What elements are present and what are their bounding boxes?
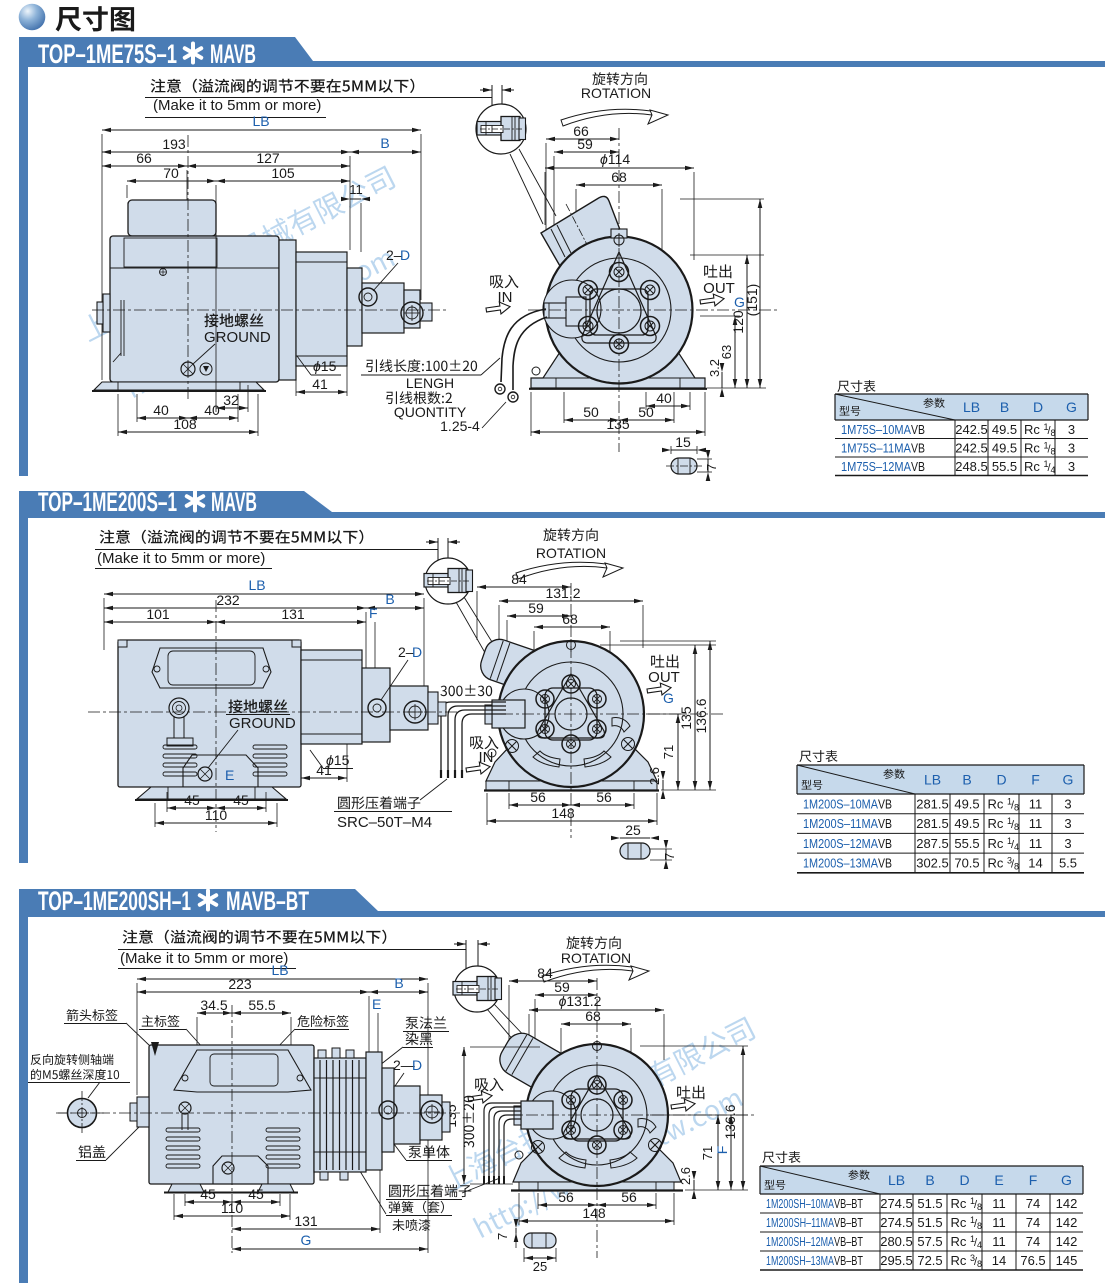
svg-text:248.5: 248.5 <box>955 459 988 474</box>
svg-text:8: 8 <box>977 1221 982 1231</box>
svg-text:242.5: 242.5 <box>955 422 988 437</box>
svg-text:Rc: Rc <box>988 855 1004 870</box>
svg-text:148: 148 <box>582 1205 606 1221</box>
svg-text:135: 135 <box>606 416 630 432</box>
svg-text:51.5: 51.5 <box>917 1196 942 1211</box>
svg-text:49.5: 49.5 <box>992 440 1017 455</box>
svg-text:142: 142 <box>1056 1234 1078 1249</box>
svg-text:Rc: Rc <box>988 796 1004 811</box>
svg-text:F: F <box>1029 1172 1038 1188</box>
svg-text:SRC–50T–M4: SRC–50T–M4 <box>337 814 432 831</box>
svg-text:70: 70 <box>163 165 179 181</box>
svg-text:F: F <box>1031 772 1040 788</box>
svg-text:45: 45 <box>248 1186 264 1202</box>
svg-text:74: 74 <box>1026 1215 1040 1230</box>
svg-text:45: 45 <box>184 792 200 808</box>
svg-text:76.5: 76.5 <box>1020 1253 1045 1268</box>
svg-text:74: 74 <box>1026 1234 1040 1249</box>
svg-text:281.5: 281.5 <box>916 816 949 831</box>
svg-text:F: F <box>369 605 378 621</box>
svg-text:8: 8 <box>977 1259 982 1269</box>
svg-text:1M75S–10MA: 1M75S–10MA <box>841 423 912 437</box>
svg-text:55.5: 55.5 <box>954 836 979 851</box>
svg-text:142: 142 <box>1056 1196 1078 1211</box>
svg-text:40: 40 <box>656 390 672 406</box>
svg-text:1M75S–12MA: 1M75S–12MA <box>841 460 912 474</box>
svg-text:70.5: 70.5 <box>954 855 979 870</box>
svg-text:40: 40 <box>153 402 169 418</box>
svg-text:1M75S–11MA: 1M75S–11MA <box>841 441 912 455</box>
svg-text:142: 142 <box>1056 1215 1078 1230</box>
svg-text:127: 127 <box>256 150 280 166</box>
svg-text:3: 3 <box>1064 796 1071 811</box>
svg-text:49.5: 49.5 <box>954 796 979 811</box>
svg-text:G: G <box>301 1232 312 1248</box>
svg-text:49.5: 49.5 <box>992 422 1017 437</box>
svg-text:68: 68 <box>562 611 578 627</box>
svg-text:84: 84 <box>511 571 527 587</box>
svg-text:7: 7 <box>704 464 719 471</box>
svg-text:LB: LB <box>252 113 269 129</box>
svg-text:VB: VB <box>878 856 892 870</box>
svg-text:71: 71 <box>661 745 676 759</box>
svg-text:295.5: 295.5 <box>880 1253 913 1268</box>
svg-text:G: G <box>1063 772 1074 788</box>
svg-text:11: 11 <box>1029 836 1043 851</box>
svg-text:50: 50 <box>583 404 599 420</box>
svg-text:ɸ15: ɸ15 <box>313 358 337 374</box>
svg-text:32: 32 <box>223 392 239 408</box>
svg-text:45: 45 <box>233 792 249 808</box>
svg-text:63: 63 <box>719 345 734 359</box>
svg-text:VB–BT: VB–BT <box>834 1197 863 1211</box>
svg-text:56: 56 <box>558 1189 574 1205</box>
svg-text:Rc: Rc <box>951 1215 967 1230</box>
svg-text:4: 4 <box>1050 465 1055 475</box>
svg-text:287.5: 287.5 <box>916 836 949 851</box>
svg-text:G: G <box>1061 1172 1072 1188</box>
svg-text:Rc: Rc <box>951 1253 967 1268</box>
svg-text:B: B <box>962 772 971 788</box>
svg-text:D: D <box>412 644 422 660</box>
svg-text:D: D <box>1033 399 1043 415</box>
svg-text:136.6: 136.6 <box>722 1104 738 1139</box>
svg-text:41: 41 <box>312 376 328 392</box>
svg-text:(151): (151) <box>744 284 760 317</box>
svg-text:8: 8 <box>1014 822 1019 832</box>
svg-text:59: 59 <box>528 600 544 616</box>
svg-text:Rc: Rc <box>1024 459 1040 474</box>
svg-text:14: 14 <box>992 1253 1006 1268</box>
svg-text:131: 131 <box>281 606 305 622</box>
svg-text:280.5: 280.5 <box>880 1234 913 1249</box>
svg-text:B: B <box>925 1172 934 1188</box>
svg-text:34.5: 34.5 <box>200 997 227 1013</box>
svg-text:Rc: Rc <box>988 836 1004 851</box>
svg-text:VB: VB <box>911 441 925 455</box>
svg-text:101: 101 <box>146 606 170 622</box>
svg-text:3: 3 <box>1068 459 1075 474</box>
svg-text:VB: VB <box>878 797 892 811</box>
svg-text:72.5: 72.5 <box>917 1253 942 1268</box>
svg-text:56: 56 <box>530 789 546 805</box>
svg-text:2.6: 2.6 <box>678 1167 693 1185</box>
svg-text:(Make it to 5mm or more): (Make it to 5mm or more) <box>120 950 288 967</box>
svg-text:B: B <box>394 975 403 991</box>
svg-text:145: 145 <box>1056 1253 1078 1268</box>
svg-text:7: 7 <box>495 1233 510 1240</box>
svg-text:Rc: Rc <box>1024 440 1040 455</box>
svg-text:8: 8 <box>1050 428 1055 438</box>
svg-text:VB: VB <box>911 423 925 437</box>
svg-text:11: 11 <box>992 1196 1006 1211</box>
svg-text:MAVB: MAVB <box>211 487 257 517</box>
svg-text:3: 3 <box>1068 440 1075 455</box>
svg-text:131: 131 <box>294 1213 318 1229</box>
svg-text:TOP–1ME75S–1: TOP–1ME75S–1 <box>38 39 177 69</box>
svg-text:ROTATION: ROTATION <box>581 85 651 101</box>
svg-text:1M200S–12MA: 1M200S–12MA <box>803 837 879 851</box>
svg-text:3: 3 <box>1064 836 1071 851</box>
svg-text:ɸ131.2: ɸ131.2 <box>559 993 602 1009</box>
svg-text:50: 50 <box>638 404 654 420</box>
svg-text:55.5: 55.5 <box>992 459 1017 474</box>
svg-text:11: 11 <box>349 182 363 197</box>
svg-text:71: 71 <box>700 1146 715 1160</box>
svg-text:74: 74 <box>1026 1196 1040 1211</box>
svg-text:LB: LB <box>924 772 941 788</box>
svg-text:55.5: 55.5 <box>248 997 275 1013</box>
svg-text:8: 8 <box>1050 446 1055 456</box>
svg-text:D: D <box>959 1172 969 1188</box>
svg-text:223: 223 <box>228 976 252 992</box>
svg-text:56: 56 <box>621 1189 637 1205</box>
svg-text:TOP–1ME200SH–1: TOP–1ME200SH–1 <box>38 886 191 916</box>
svg-text:1M200S–11MA: 1M200S–11MA <box>803 817 879 831</box>
svg-text:1M200SH–12MA: 1M200SH–12MA <box>766 1235 834 1249</box>
svg-text:GROUND: GROUND <box>204 329 271 346</box>
svg-text:4: 4 <box>1014 842 1019 852</box>
svg-text:1M200SH–10MA: 1M200SH–10MA <box>766 1197 834 1211</box>
svg-text:5.5: 5.5 <box>1059 855 1077 870</box>
svg-text:ROTATION: ROTATION <box>561 950 631 966</box>
svg-text:108: 108 <box>173 416 197 432</box>
svg-text:51.5: 51.5 <box>917 1215 942 1230</box>
svg-text:8: 8 <box>1014 802 1019 812</box>
svg-text:40: 40 <box>204 402 220 418</box>
svg-text:135: 135 <box>678 706 694 730</box>
svg-text:59: 59 <box>577 136 593 152</box>
svg-text:4: 4 <box>977 1240 982 1250</box>
svg-text:Rc: Rc <box>988 816 1004 831</box>
svg-text:3: 3 <box>1064 816 1071 831</box>
svg-text:E: E <box>994 1172 1003 1188</box>
svg-text:11: 11 <box>992 1234 1006 1249</box>
svg-text:G: G <box>663 690 674 706</box>
svg-text:VB–BT: VB–BT <box>834 1235 863 1249</box>
svg-text:D: D <box>400 247 410 263</box>
svg-text:1M200SH–11MA: 1M200SH–11MA <box>766 1216 834 1230</box>
svg-text:LB: LB <box>963 399 980 415</box>
svg-text:OUT: OUT <box>703 280 735 297</box>
svg-text:105: 105 <box>271 165 295 181</box>
svg-text:3: 3 <box>1068 422 1075 437</box>
svg-text:B: B <box>385 591 394 607</box>
svg-text:TOP–1ME200S–1: TOP–1ME200S–1 <box>38 487 177 517</box>
svg-text:ROTATION: ROTATION <box>536 545 606 561</box>
svg-text:136.6: 136.6 <box>693 698 709 733</box>
svg-text:VB: VB <box>911 460 925 474</box>
svg-text:66: 66 <box>136 150 152 166</box>
svg-text:11: 11 <box>1029 796 1043 811</box>
svg-text:232: 232 <box>216 592 240 608</box>
svg-text:8: 8 <box>1014 861 1019 871</box>
svg-text:49.5: 49.5 <box>954 816 979 831</box>
svg-text:8: 8 <box>977 1202 982 1212</box>
svg-text:1M200S–10MA: 1M200S–10MA <box>803 797 879 811</box>
svg-text:VB: VB <box>878 817 892 831</box>
svg-text:LB: LB <box>888 1172 905 1188</box>
svg-text:MAVB–BT: MAVB–BT <box>226 886 309 916</box>
svg-text:25: 25 <box>533 1259 547 1274</box>
svg-text:MAVB: MAVB <box>210 39 256 69</box>
svg-text:7: 7 <box>662 853 677 860</box>
svg-text:D: D <box>996 772 1006 788</box>
svg-text:11: 11 <box>992 1215 1006 1230</box>
svg-text:25: 25 <box>625 822 641 838</box>
svg-text:302.5: 302.5 <box>916 855 949 870</box>
svg-text:1.25-4: 1.25-4 <box>440 418 480 434</box>
svg-text:E: E <box>372 996 381 1012</box>
svg-text:15: 15 <box>675 434 691 450</box>
svg-text:F: F <box>714 1146 730 1155</box>
svg-text:1M200S–13MA: 1M200S–13MA <box>803 856 879 870</box>
svg-text:11: 11 <box>1029 816 1043 831</box>
svg-text:41: 41 <box>316 762 332 778</box>
svg-text:1M200SH–13MA: 1M200SH–13MA <box>766 1254 834 1268</box>
svg-text:Rc: Rc <box>1024 422 1040 437</box>
svg-text:281.5: 281.5 <box>916 796 949 811</box>
svg-text:VB: VB <box>878 837 892 851</box>
svg-text:56: 56 <box>596 789 612 805</box>
svg-text:84: 84 <box>537 965 553 981</box>
svg-text:GROUND: GROUND <box>229 715 296 732</box>
svg-text:OUT: OUT <box>648 669 680 686</box>
svg-text:2.6: 2.6 <box>647 767 662 785</box>
svg-text:VB–BT: VB–BT <box>834 1254 863 1268</box>
svg-text:45: 45 <box>200 1186 216 1202</box>
svg-text:LB: LB <box>248 577 265 593</box>
svg-text:D: D <box>412 1057 422 1073</box>
svg-text:14: 14 <box>1028 855 1042 870</box>
svg-text:VB–BT: VB–BT <box>834 1216 863 1230</box>
svg-text:LB: LB <box>271 962 288 978</box>
svg-text:ɸ114: ɸ114 <box>600 151 630 167</box>
svg-text:(Make it to 5mm or more): (Make it to 5mm or more) <box>153 97 321 114</box>
svg-text:B: B <box>380 135 389 151</box>
svg-text:242.5: 242.5 <box>955 440 988 455</box>
svg-text:274.5: 274.5 <box>880 1196 913 1211</box>
svg-text:131.2: 131.2 <box>545 585 580 601</box>
svg-text:Rc: Rc <box>951 1234 967 1249</box>
svg-text:3.2: 3.2 <box>707 359 722 377</box>
svg-text:57.5: 57.5 <box>917 1234 942 1249</box>
svg-text:193: 193 <box>162 136 186 152</box>
svg-text:68: 68 <box>585 1008 601 1024</box>
svg-text:G: G <box>1066 399 1077 415</box>
svg-text:E: E <box>225 767 234 783</box>
svg-text:(Make it to 5mm or more): (Make it to 5mm or more) <box>97 550 265 567</box>
svg-text:Rc: Rc <box>951 1196 967 1211</box>
svg-text:274.5: 274.5 <box>880 1215 913 1230</box>
svg-text:B: B <box>1000 399 1009 415</box>
svg-text:LENGH: LENGH <box>406 375 454 391</box>
